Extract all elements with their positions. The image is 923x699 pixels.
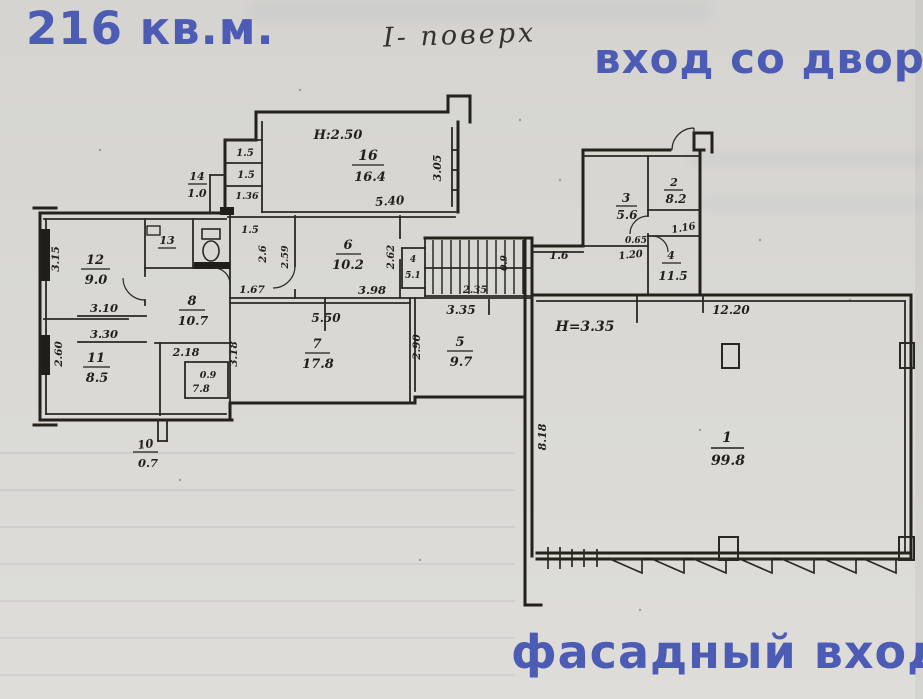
dim-label: 1.5 [237,170,254,181]
total-area-annotation: 216 кв.м. [26,2,275,55]
facade-entrance-annotation: фасадный вход [511,625,923,679]
room-number: 8 [187,294,196,309]
dim-label: 1.67 [239,284,265,296]
room-number: 2 [669,176,678,189]
dim-label: 1.5 [241,225,258,236]
dim-label: 0.65 [625,236,647,246]
dim-label: 2.35 [462,285,487,296]
dim-label: 8.18 [536,423,549,450]
dim-label: 5.50 [311,311,341,325]
room-number: 3 [622,191,630,205]
room-area: 9.7 [450,355,473,370]
dim-label: 2.90 [411,334,423,361]
room-area: 17.8 [302,357,334,372]
room-area: 16.4 [354,170,386,185]
dim-label: 3.15 [50,246,62,272]
dim-label: 1.6 [549,249,568,262]
floor-number-handwriting: I- поверх [383,17,537,53]
dim-label: 2.60 [53,341,65,368]
dim-label: 1.20 [618,249,643,262]
room-area: 8.2 [666,192,687,206]
dim-label: 4 [410,255,416,265]
dim-label: 2.6 [258,245,269,263]
dim-label: 1.5 [236,148,253,159]
ceiling-height-label: H=3.35 [554,319,614,335]
dim-label: 0.9 [200,370,217,381]
room-area: 5.6 [617,208,639,222]
room-area: 1.0 [187,187,206,200]
room-area: 9.0 [85,273,108,288]
room-number: 1 [722,430,732,446]
dim-label: 1.36 [235,191,259,202]
dim-label: 3.05 [431,155,444,182]
room-number: 4 [667,249,675,262]
dim-label: 3.10 [90,301,118,315]
room-number: 14 [189,170,204,183]
dim-label: 3.30 [90,327,118,341]
room-area: 0.7 [138,456,158,470]
dim-label: 5.1 [405,271,421,281]
room-number: 16 [358,148,378,164]
room-number: 5 [455,335,464,350]
room-number: 10 [137,436,155,452]
room-number: 6 [343,238,352,253]
window-marks [41,207,234,375]
room-number: 11 [87,351,105,366]
dim-label: 3.35 [446,303,475,317]
room-number: 7 [312,337,321,352]
dim-label: 7.8 [192,384,209,395]
sink-icon [147,226,160,235]
yard-entrance-annotation: вход со двора [594,34,923,83]
room-area: 8.5 [86,371,109,386]
scanned-floor-plan-page: { "annotations": { "area_total": "216 кв… [0,0,923,699]
room-area: 11.5 [658,269,687,283]
dim-label: 3.18 [228,341,240,367]
dim-label: 1.16 [671,221,697,236]
ceiling-height-label: H:2.50 [313,128,363,143]
room-number: 13 [159,234,175,247]
dim-label: 2.62 [386,245,397,270]
room-area: 10.7 [178,313,209,328]
dim-label: 0.9 [500,254,510,270]
interior-walls [44,122,905,553]
dim-label: 5.40 [375,193,406,209]
room-area: 99.8 [711,453,745,469]
dim-label: 2.59 [280,245,291,270]
toilet-icon [202,229,220,261]
room-area: 10.2 [332,258,364,273]
floor-plan-svg: H:2.50 16 16.4 5.40 3.05 1.5 1.5 1.36 14… [0,0,923,699]
dim-label: 3.98 [358,283,386,297]
room-number: 12 [86,253,104,268]
dim-label: 12.20 [712,303,750,317]
dim-label: 2.18 [172,346,200,359]
columns [719,343,914,560]
